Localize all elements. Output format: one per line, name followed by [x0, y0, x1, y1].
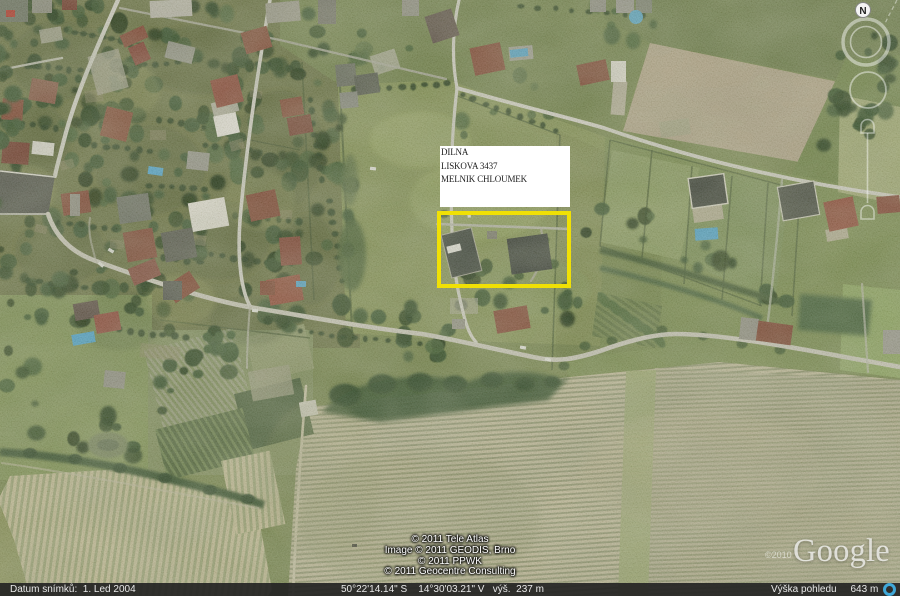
svg-text:N: N	[859, 6, 866, 17]
